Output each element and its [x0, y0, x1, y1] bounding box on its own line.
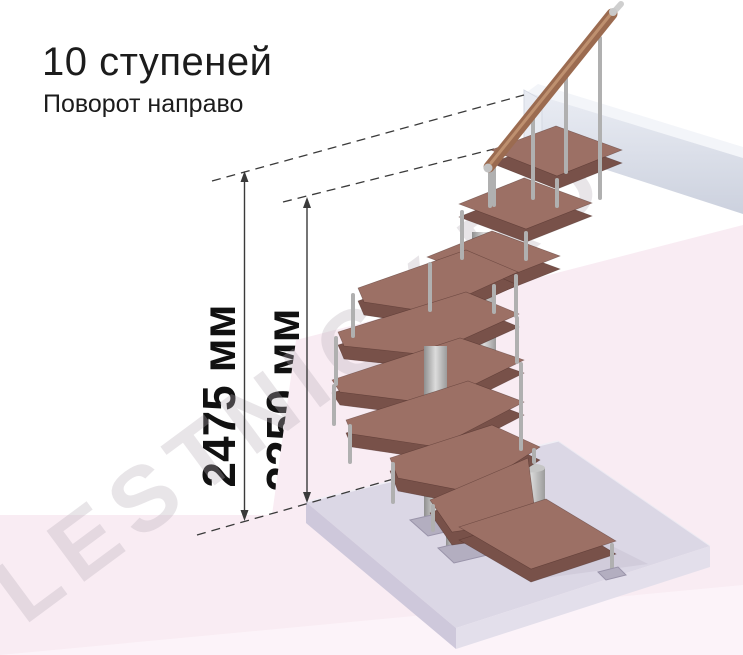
extension-line-2475	[212, 95, 524, 181]
dimension-line-2475	[241, 171, 249, 521]
staircase-scene	[0, 0, 743, 655]
staircase-diagram-page: LESTNICY.RU	[0, 0, 743, 655]
dimension-line-2250	[303, 197, 311, 503]
extension-line-2250	[283, 149, 494, 202]
handrail-cap-bottom	[484, 164, 493, 173]
handrail-cap-top	[609, 8, 617, 16]
